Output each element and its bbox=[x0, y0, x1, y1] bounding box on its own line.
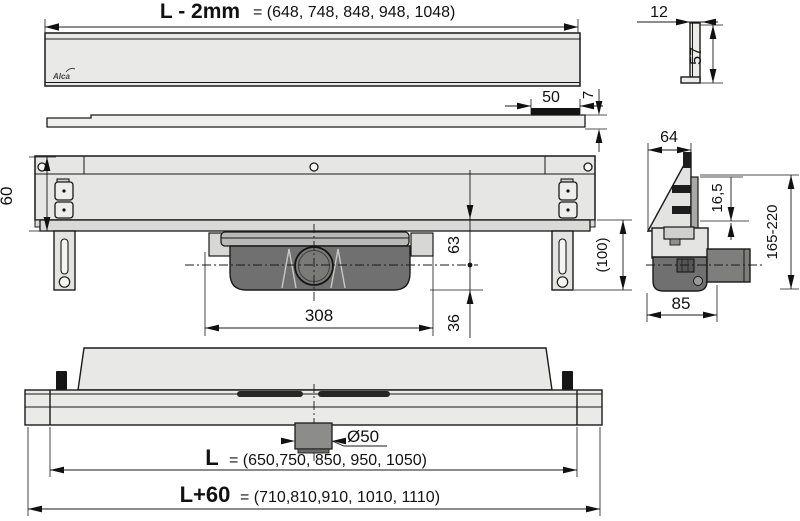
strip-length-dim: 50 bbox=[542, 89, 560, 106]
clip-dot bbox=[62, 189, 65, 192]
leg-slot bbox=[559, 239, 566, 274]
drain-slot-right bbox=[318, 391, 390, 397]
section-clip bbox=[670, 239, 680, 245]
total-length-values: = (710,810,910, 1010, 1110) bbox=[240, 489, 440, 506]
profile-width-dim: 12 bbox=[650, 4, 668, 21]
total-length-label: L+60 bbox=[180, 482, 231, 507]
plate-thickness-dim: 7 bbox=[580, 91, 597, 99]
cover-plate-adhesive-strip bbox=[531, 108, 580, 116]
mount-post-left bbox=[56, 371, 67, 390]
height-range-dim: 165-220 bbox=[764, 204, 781, 259]
section-width-dim: 64 bbox=[660, 129, 678, 146]
leg-left bbox=[54, 231, 75, 290]
channel-length-label: L bbox=[205, 445, 218, 470]
trap-depth-dim: 85 bbox=[672, 294, 691, 313]
tile-flange bbox=[40, 220, 590, 231]
screw-hole-right bbox=[584, 163, 592, 171]
flange-tab-left bbox=[35, 220, 40, 227]
leg-hole bbox=[557, 277, 567, 287]
brand-logo: Alca bbox=[52, 72, 70, 81]
leg-right bbox=[552, 231, 573, 290]
view-cover-plate: 50 7 bbox=[47, 89, 607, 152]
screw-hole-center bbox=[310, 163, 318, 171]
clip-dot bbox=[62, 208, 65, 211]
wall-panel-plan bbox=[78, 348, 552, 390]
siphon-trap bbox=[185, 224, 478, 304]
view-side-section: 64 16,5 165-220 85 bbox=[646, 129, 799, 322]
axis-to-bottom-dim: 36 bbox=[446, 314, 463, 332]
trap-width-dim: 308 bbox=[305, 306, 333, 325]
top-to-axis-dim: 63 bbox=[446, 236, 463, 254]
wall-plate-section bbox=[691, 177, 698, 231]
body-height-dim: 60 bbox=[0, 187, 16, 206]
outlet-diameter-dim: Ø50 bbox=[347, 427, 379, 446]
outlet-plan bbox=[295, 423, 332, 449]
trap-bracket-right bbox=[411, 233, 433, 256]
leg-height-dim: (100) bbox=[594, 237, 611, 272]
cover-plate bbox=[47, 115, 585, 127]
grate-panel bbox=[45, 33, 580, 86]
view-grate-front: L - 2mm = (648, 748, 848, 948, 1048) Alc… bbox=[45, 0, 580, 86]
bracket-top-clamp bbox=[683, 152, 691, 168]
trap-drain-plug bbox=[694, 277, 703, 286]
axis-dot bbox=[468, 263, 473, 268]
profile-height-dim: 57 bbox=[688, 47, 705, 65]
view-wall-profile: 12 57 bbox=[637, 4, 723, 83]
plate-offset-dim: 16,5 bbox=[709, 183, 726, 212]
view-plan: Ø50 L = (650,750, 850, 950, 1050) L+60 =… bbox=[25, 348, 602, 516]
mount-post-right bbox=[562, 371, 573, 390]
channel-length-values: = (650,750, 850, 950, 1050) bbox=[229, 452, 427, 469]
channel-section-lid bbox=[664, 227, 694, 239]
leg-slot bbox=[61, 239, 68, 274]
wall-profile-foot bbox=[681, 77, 700, 83]
drain-slot-left bbox=[237, 391, 303, 397]
grate-length-label: L - 2mm bbox=[160, 0, 240, 23]
trap-union-nut bbox=[677, 259, 694, 272]
technical-drawing-canvas: L - 2mm = (648, 748, 848, 948, 1048) Alc… bbox=[0, 0, 800, 521]
technical-drawing-page: L - 2mm = (648, 748, 848, 948, 1048) Alc… bbox=[0, 0, 800, 521]
clip-dot bbox=[566, 189, 569, 192]
clip-dot bbox=[566, 208, 569, 211]
trap-lid bbox=[221, 232, 409, 246]
leg-hole bbox=[59, 277, 69, 287]
view-assembly-front: 308 63 36 (100) 60 bbox=[0, 156, 632, 338]
flange-tab-right bbox=[590, 220, 595, 227]
grate-length-values: = (648, 748, 848, 948, 1048) bbox=[253, 4, 455, 21]
